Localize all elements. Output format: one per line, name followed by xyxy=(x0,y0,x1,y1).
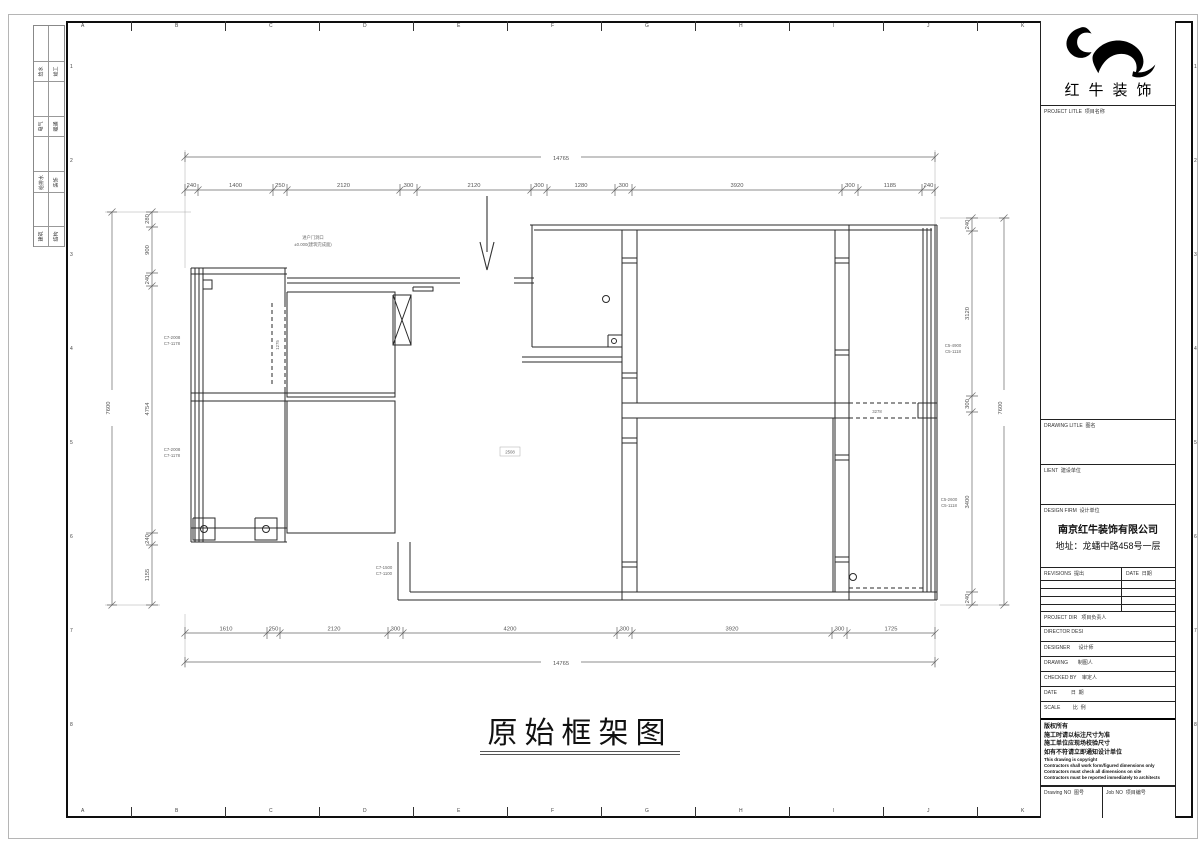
svg-text:4754: 4754 xyxy=(145,402,151,416)
window-code: C5-4900 xyxy=(945,343,962,348)
signature-cell-empty xyxy=(49,82,64,117)
signature-cell: 电气 xyxy=(34,117,49,137)
grid-ref-number: 4 xyxy=(70,346,73,352)
window-code: C7-1178 xyxy=(164,341,181,346)
svg-text:3920: 3920 xyxy=(731,183,744,189)
grid-ref-number: 1 xyxy=(70,64,73,70)
drawing-no-section: Drawing NO 图号 Job NO 项目编号 xyxy=(1041,786,1175,818)
grid-ref-letter: I xyxy=(833,808,834,814)
signature-label: 给水 xyxy=(37,66,44,76)
dashed-openings xyxy=(272,230,923,588)
grid-ref-tick xyxy=(789,21,790,31)
walls xyxy=(191,225,937,600)
signature-cell-empty xyxy=(34,193,49,227)
copyright-line-en: Contractors must be reported immediately… xyxy=(1044,775,1172,781)
signature-label: 建筑 xyxy=(37,231,44,241)
design-firm-name: 南京红牛装饰有限公司 xyxy=(1041,521,1175,536)
signature-cell-empty xyxy=(34,26,49,62)
grid-ref-tick xyxy=(977,21,978,31)
svg-text:240: 240 xyxy=(145,534,151,544)
drawing-by-row: DRAWING 制图人 xyxy=(1041,657,1175,672)
signature-label: 竣工 xyxy=(53,66,60,76)
svg-text:300: 300 xyxy=(965,399,971,409)
grid-ref-letter: C xyxy=(269,23,273,29)
grid-ref-number: 2 xyxy=(1194,158,1197,164)
trim-line-right xyxy=(1197,14,1198,839)
svg-text:4200: 4200 xyxy=(504,627,517,633)
grid-ref-letter: B xyxy=(175,808,178,814)
svg-text:3920: 3920 xyxy=(726,627,739,633)
design-firm-label: DESIGN FIRM 设计单位 xyxy=(1041,505,1175,514)
entry-arrow xyxy=(480,196,494,270)
revisions-row-line xyxy=(1041,580,1175,581)
grid-ref-number: 5 xyxy=(70,440,73,446)
signature-cell-empty xyxy=(49,137,64,172)
svg-text:300: 300 xyxy=(391,627,401,633)
signature-cell: 装饰 xyxy=(49,172,64,193)
copyright-line: 施工时请以标注尺寸为准 xyxy=(1044,732,1172,741)
signature-cell: 竣工 xyxy=(49,62,64,82)
svg-text:300: 300 xyxy=(845,183,855,189)
grid-ref-letter: E xyxy=(457,23,460,29)
svg-text:300: 300 xyxy=(404,183,414,189)
grid-ref-letter: A xyxy=(81,23,84,29)
grid-ref-letter: G xyxy=(645,808,649,814)
svg-text:280: 280 xyxy=(145,214,151,224)
window-code: C5-2600 xyxy=(941,497,958,502)
svg-text:1280: 1280 xyxy=(575,183,588,189)
svg-text:250: 250 xyxy=(275,183,285,189)
grid-ref-tick xyxy=(977,807,978,817)
grid-ref-tick xyxy=(601,807,602,817)
window-code: C7-1500 xyxy=(376,565,393,570)
project-title-section: PROJECT LITLE 项目名称 xyxy=(1041,106,1175,420)
grid-ref-tick xyxy=(507,807,508,817)
grid-ref-tick xyxy=(789,807,790,817)
director-label: DIRECTOR DESI xyxy=(1041,627,1175,635)
svg-text:240: 240 xyxy=(145,275,151,285)
checked-by-row: CHECKED BY 审定人 xyxy=(1041,672,1175,687)
opening-width-label: 1275 xyxy=(275,340,280,350)
project-title-label: PROJECT LITLE 项目名称 xyxy=(1041,106,1175,115)
grid-ref-letter: F xyxy=(551,808,554,814)
entry-note: ±0.000(建筑完成面) xyxy=(294,241,332,248)
floor-plan: 14765 240 1400 250 2120 300 2120 300 128… xyxy=(80,140,1010,685)
entry-note: 进户门洞口 xyxy=(302,234,323,241)
svg-text:240: 240 xyxy=(965,594,971,604)
signature-cell: 给排水 xyxy=(34,172,49,193)
fields-section: PROJECT DIR 项目负责人 DIRECTOR DESI DESIGNER… xyxy=(1041,612,1175,718)
svg-text:300: 300 xyxy=(835,627,845,633)
title-block-logo-section: 红牛装饰 xyxy=(1041,21,1175,106)
signature-label: 给排水 xyxy=(38,174,45,189)
grid-ref-letter: J xyxy=(927,23,930,29)
svg-text:240: 240 xyxy=(924,183,934,189)
grid-ref-tick xyxy=(225,21,226,31)
svg-text:240: 240 xyxy=(187,183,197,189)
grid-ref-number: 1 xyxy=(1194,64,1197,70)
grid-ref-number: 2 xyxy=(70,158,73,164)
grid-ref-tick xyxy=(601,21,602,31)
signature-cell: 结构 xyxy=(49,227,64,247)
grid-ref-tick xyxy=(319,21,320,31)
grid-ref-tick xyxy=(131,807,132,817)
checked-by-label: CHECKED BY 审定人 xyxy=(1041,672,1175,681)
cad-sheet: ABCDEFGHIJK ABCDEFGHIJK 12345678 1234567… xyxy=(0,0,1200,844)
grid-ref-letter: G xyxy=(645,23,649,29)
grid-ref-number: 6 xyxy=(70,534,73,540)
dim-right-total: 7600 xyxy=(998,402,1004,415)
opening-width-label: 3278 xyxy=(872,409,882,414)
drawing-title: 原始框架图 xyxy=(440,708,720,752)
plan-annotations: 进户门洞口 ±0.000(建筑完成面) 2508 1275 3278 C7-20… xyxy=(164,234,962,576)
window-code: C7-2008 xyxy=(164,335,181,340)
signature-cell: 给水 xyxy=(34,62,49,82)
revisions-label: REVISIONS 提出 xyxy=(1041,568,1087,577)
copyright-line: 如有不符请立即通知设计单位 xyxy=(1044,749,1172,758)
svg-text:2120: 2120 xyxy=(337,183,350,189)
scale-row: SCALE 比 例 xyxy=(1041,702,1175,718)
grid-ref-letter: B xyxy=(175,23,178,29)
revisions-table: REVISIONS 提出 DATE 日期 xyxy=(1041,568,1175,611)
grid-ref-number: 3 xyxy=(70,252,73,258)
room-label: 2508 xyxy=(505,450,515,455)
dim-bottom-total: 14765 xyxy=(553,661,569,667)
grid-ref-number: 3 xyxy=(1194,252,1197,258)
svg-text:1155: 1155 xyxy=(145,569,151,581)
svg-text:1610: 1610 xyxy=(220,627,233,633)
project-dir-label: PROJECT DIR 项目负责人 xyxy=(1041,612,1175,621)
svg-text:250: 250 xyxy=(269,627,279,633)
signature-cell-empty xyxy=(34,82,49,117)
svg-text:3400: 3400 xyxy=(965,496,971,509)
drawing-title-section: DRAWING LITLE 图名 xyxy=(1041,420,1175,465)
date-label: DATE 日 期 xyxy=(1041,687,1175,696)
revisions-row-line xyxy=(1041,604,1175,605)
brand-logo-icon xyxy=(1048,23,1168,79)
signature-label: 结构 xyxy=(53,231,60,241)
grid-ref-letter: D xyxy=(363,808,367,814)
grid-ref-letter: H xyxy=(739,23,743,29)
trim-line-bottom xyxy=(8,838,1198,839)
client-label: LIENT 建设单位 xyxy=(1041,465,1175,474)
grid-ref-letter: I xyxy=(833,23,834,29)
signature-strip: 给水 竣工 电气 暖通 给排水 装饰 建筑 结构 xyxy=(33,25,65,247)
drawing-title-underline xyxy=(480,751,680,755)
title-block: 红牛装饰 PROJECT LITLE 项目名称 DRAWING LITLE 图名… xyxy=(1040,21,1176,818)
drawing-no-cell: Drawing NO 图号 xyxy=(1041,787,1103,818)
copyright-line: 版权所有 xyxy=(1044,723,1172,732)
signature-cell: 暖通 xyxy=(49,117,64,137)
grid-ref-tick xyxy=(413,807,414,817)
drawing-by-label: DRAWING 制图人 xyxy=(1041,657,1175,666)
svg-text:1400: 1400 xyxy=(229,183,242,189)
window-code: C7-1100 xyxy=(376,571,393,576)
grid-ref-number: 7 xyxy=(1194,628,1197,634)
revisions-row-line xyxy=(1041,588,1175,589)
window-code: C5-1118 xyxy=(941,503,957,508)
grid-ref-letter: J xyxy=(927,808,930,814)
brand-name: 红牛装饰 xyxy=(1041,79,1175,100)
dim-top-total: 14765 xyxy=(553,156,569,162)
director-row: DIRECTOR DESI xyxy=(1041,627,1175,642)
grid-ref-tick xyxy=(413,21,414,31)
grid-ref-letter: H xyxy=(739,808,743,814)
dim-left-total: 7600 xyxy=(106,402,112,415)
signature-label: 电气 xyxy=(37,121,44,131)
revisions-section: REVISIONS 提出 DATE 日期 xyxy=(1041,568,1175,612)
job-no-label: Job NO 项目编号 xyxy=(1103,787,1175,796)
revisions-row-line xyxy=(1041,596,1175,597)
grid-ref-number: 5 xyxy=(1194,440,1197,446)
drawing-no-label: Drawing NO 图号 xyxy=(1041,787,1102,796)
svg-text:300: 300 xyxy=(619,183,629,189)
svg-text:1185: 1185 xyxy=(884,183,896,189)
grid-ref-letter: C xyxy=(269,808,273,814)
signature-cell-empty xyxy=(49,193,64,227)
grid-ref-tick xyxy=(131,21,132,31)
signature-cell: 建筑 xyxy=(34,227,49,247)
svg-text:1725: 1725 xyxy=(885,627,898,633)
grid-ref-number: 7 xyxy=(70,628,73,634)
trim-line-left xyxy=(8,14,9,839)
svg-text:2120: 2120 xyxy=(468,183,481,189)
grid-ref-tick xyxy=(883,21,884,31)
grid-ref-letter: K xyxy=(1021,23,1024,29)
grid-ref-letter: K xyxy=(1021,808,1024,814)
grid-ref-number: 6 xyxy=(1194,534,1197,540)
copyright-section: 版权所有 施工时请以标注尺寸为准 施工单位应现场校验尺寸 如有不符请立即通知设计… xyxy=(1041,718,1175,786)
signature-label: 暖通 xyxy=(53,121,60,131)
trim-line-top xyxy=(8,14,1198,15)
grid-ref-letter: D xyxy=(363,23,367,29)
grid-ref-tick xyxy=(507,21,508,31)
grid-ref-tick xyxy=(883,807,884,817)
copyright-line: 施工单位应现场校验尺寸 xyxy=(1044,740,1172,749)
designer-row: DESIGNER 设计师 xyxy=(1041,642,1175,657)
job-no-cell: Job NO 项目编号 xyxy=(1103,787,1175,818)
grid-ref-letter: E xyxy=(457,808,460,814)
design-firm-address: 地址：龙蟠中路458号一层 xyxy=(1041,539,1175,552)
grid-ref-number: 8 xyxy=(70,722,73,728)
designer-label: DESIGNER 设计师 xyxy=(1041,642,1175,651)
grid-ref-letter: A xyxy=(81,808,84,814)
window-code: C5-1118 xyxy=(945,349,961,354)
grid-ref-tick xyxy=(695,21,696,31)
svg-text:240: 240 xyxy=(965,220,971,230)
grid-ref-tick xyxy=(695,807,696,817)
window-code: C7-2008 xyxy=(164,447,181,452)
signature-label: 装饰 xyxy=(53,177,60,187)
design-firm-section: DESIGN FIRM 设计单位 南京红牛装饰有限公司 地址：龙蟠中路458号一… xyxy=(1041,505,1175,568)
svg-text:300: 300 xyxy=(620,627,630,633)
window-code: C7-1178 xyxy=(164,453,181,458)
drawing-title-label: DRAWING LITLE 图名 xyxy=(1041,420,1175,429)
svg-text:300: 300 xyxy=(534,183,544,189)
svg-text:2120: 2120 xyxy=(328,627,341,633)
revisions-date-label: DATE 日期 xyxy=(1123,568,1155,577)
grid-ref-letter: F xyxy=(551,23,554,29)
grid-ref-number: 4 xyxy=(1194,346,1197,352)
signature-cell-empty xyxy=(49,26,64,62)
signature-cell-empty xyxy=(34,137,49,172)
grid-ref-tick xyxy=(319,807,320,817)
project-dir-row: PROJECT DIR 项目负责人 xyxy=(1041,612,1175,627)
client-section: LIENT 建设单位 xyxy=(1041,465,1175,505)
grid-ref-tick xyxy=(225,807,226,817)
grid-ref-number: 8 xyxy=(1194,722,1197,728)
svg-text:3120: 3120 xyxy=(965,307,971,320)
scale-label: SCALE 比 例 xyxy=(1041,702,1175,711)
date-row: DATE 日 期 xyxy=(1041,687,1175,702)
svg-text:900: 900 xyxy=(145,245,151,255)
